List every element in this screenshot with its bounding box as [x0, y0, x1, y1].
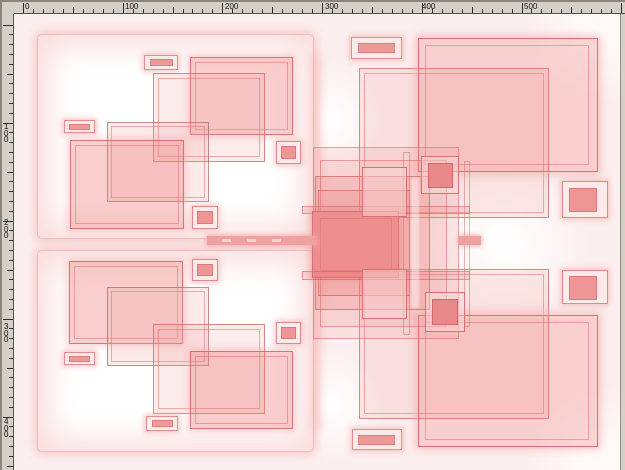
ruler-tick: [282, 9, 283, 13]
r-small-square-bottom-inner: [432, 299, 458, 325]
ruler-tick: [9, 34, 13, 35]
ruler-tick: [9, 142, 13, 143]
ruler-tick: [272, 7, 273, 13]
ruler-tick: [322, 3, 323, 13]
ruler-tick: [302, 9, 303, 13]
ruler-tick: [551, 9, 552, 13]
ruler-tick: [362, 9, 363, 13]
ruler-tick: [442, 9, 443, 13]
ruler-tick: [163, 9, 164, 13]
ruler-tick: [9, 299, 13, 300]
ruler-tick: [9, 191, 13, 192]
ruler-label: 200: [225, 3, 238, 11]
ruler-tick: [591, 9, 592, 13]
ruler-tick: [9, 436, 13, 437]
p2-square-top-inner: [197, 264, 213, 276]
app-window: 0100200300400500 1 0 02 0 03 0 04 0 0: [0, 0, 625, 470]
ruler-tick: [113, 9, 114, 13]
ruler-tick: [222, 3, 223, 13]
ruler-tick: [292, 9, 293, 13]
ruler-tick: [212, 9, 213, 13]
ruler-tick: [9, 64, 13, 65]
ruler-tick: [7, 368, 13, 369]
ruler-label: 0: [25, 3, 29, 11]
ruler-tick: [462, 9, 463, 13]
ruler-tick: [9, 162, 13, 163]
ruler-tick: [9, 113, 13, 114]
p1-square-bottom-inner: [197, 211, 213, 224]
ruler-tick: [43, 9, 44, 13]
ruler-tick: [9, 279, 13, 280]
r-far-square-bottom-inner: [569, 276, 597, 300]
ruler-label: 500: [524, 3, 537, 11]
cluster-square-top-left: [362, 167, 407, 217]
p1-pill-top-inner: [150, 59, 173, 66]
ruler-label: 4 0 0: [4, 419, 8, 439]
p1-square-right-inner: [281, 146, 296, 159]
ruler-tick: [53, 9, 54, 13]
ruler-tick: [402, 9, 403, 13]
ruler-label: 100: [125, 3, 138, 11]
ruler-tick: [392, 9, 393, 13]
connector-dash-2: [247, 239, 256, 242]
ruler-tick: [541, 9, 542, 13]
ruler-tick: [9, 83, 13, 84]
ruler-tick: [9, 93, 13, 94]
ruler-tick: [9, 446, 13, 447]
p1-rect-bottom-left-ring: [75, 145, 179, 224]
ruler-tick: [312, 9, 313, 13]
p1-pill-left-inner: [69, 124, 90, 130]
ruler-tick: [3, 319, 13, 320]
window-right-frame: [620, 14, 625, 470]
ruler-tick: [412, 9, 413, 13]
ruler-tick: [342, 9, 343, 13]
ruler-tick: [7, 172, 13, 173]
cluster-light-column: [411, 178, 419, 308]
r-far-square-top-inner: [569, 188, 597, 212]
ruler-tick: [581, 9, 582, 13]
cluster-core-ring: [320, 218, 392, 271]
ruler-tick: [372, 7, 373, 13]
ruler-tick: [7, 270, 13, 271]
ruler-horizontal[interactable]: 0100200300400500: [14, 0, 625, 14]
ruler-vertical[interactable]: 1 0 02 0 03 0 04 0 0: [0, 14, 14, 470]
ruler-tick: [482, 9, 483, 13]
ruler-tick: [9, 152, 13, 153]
ruler-tick: [9, 201, 13, 202]
ruler-tick: [472, 7, 473, 13]
canvas-shapes-layer: [0, 0, 625, 470]
ruler-tick: [9, 240, 13, 241]
ruler-tick: [9, 132, 13, 133]
p2-pill-bottom-inner: [152, 420, 173, 427]
ruler-label: 400: [422, 3, 435, 11]
ruler-label: 1 0 0: [4, 124, 8, 144]
ruler-tick: [9, 397, 13, 398]
ruler-tick: [33, 9, 34, 13]
ruler-tick: [352, 9, 353, 13]
ruler-tick: [382, 9, 383, 13]
p2-rect-bottom-right-ring: [195, 356, 288, 424]
r-pill-bottom-inner: [358, 435, 395, 445]
ruler-tick: [143, 9, 144, 13]
ruler-tick: [9, 289, 13, 290]
ruler-label: 2 0 0: [4, 220, 8, 240]
p2-pill-left-inner: [69, 356, 90, 362]
ruler-label: 300: [325, 3, 338, 11]
ruler-tick: [502, 9, 503, 13]
ruler-tick: [183, 9, 184, 13]
ruler-tick: [571, 7, 572, 13]
ruler-tick: [611, 9, 612, 13]
ruler-tick: [9, 377, 13, 378]
ruler-tick: [9, 54, 13, 55]
ruler-tick: [9, 387, 13, 388]
ruler-tick: [192, 9, 193, 13]
r-pill-top-inner: [358, 43, 395, 53]
ruler-tick: [123, 3, 124, 13]
ruler-tick: [9, 103, 13, 104]
ruler-tick: [512, 9, 513, 13]
ruler-tick: [173, 7, 174, 13]
ruler-tick: [63, 9, 64, 13]
ruler-tick: [7, 466, 13, 467]
ruler-tick: [621, 3, 622, 13]
ruler-tick: [7, 74, 13, 75]
ruler-tick: [9, 260, 13, 261]
ruler-tick: [9, 309, 13, 310]
r-big-square-bottom-right-ring: [425, 322, 589, 440]
ruler-tick: [601, 9, 602, 13]
ruler-tick: [73, 7, 74, 13]
ruler-tick: [9, 338, 13, 339]
ruler-tick: [153, 9, 154, 13]
ruler-tick: [83, 9, 84, 13]
ruler-tick: [9, 328, 13, 329]
p2-square-right-inner: [281, 327, 296, 339]
ruler-tick: [3, 25, 13, 26]
ruler-tick: [9, 181, 13, 182]
ruler-tick: [9, 426, 13, 427]
cluster-square-bottom-left: [362, 269, 407, 319]
ruler-tick: [9, 44, 13, 45]
ruler-tick: [9, 211, 13, 212]
ruler-tick: [252, 9, 253, 13]
ruler-label: 3 0 0: [4, 324, 8, 344]
ruler-tick: [103, 9, 104, 13]
r-small-square-top-inner: [428, 163, 453, 188]
ruler-tick: [492, 9, 493, 13]
ruler-tick: [9, 250, 13, 251]
connector-dash-1: [222, 239, 231, 242]
ruler-tick: [9, 348, 13, 349]
ruler-tick: [262, 9, 263, 13]
connector-dash-3: [272, 239, 281, 242]
ruler-corner-box: [0, 0, 14, 14]
connector-band-right: [459, 236, 481, 245]
ruler-tick: [242, 9, 243, 13]
ruler-tick: [522, 3, 523, 13]
ruler-tick: [9, 407, 13, 408]
ruler-tick: [9, 456, 13, 457]
ruler-tick: [452, 9, 453, 13]
ruler-tick: [202, 9, 203, 13]
ruler-tick: [561, 9, 562, 13]
ruler-tick: [9, 230, 13, 231]
ruler-tick: [93, 9, 94, 13]
ruler-tick: [9, 358, 13, 359]
ruler-tick: [23, 3, 24, 13]
